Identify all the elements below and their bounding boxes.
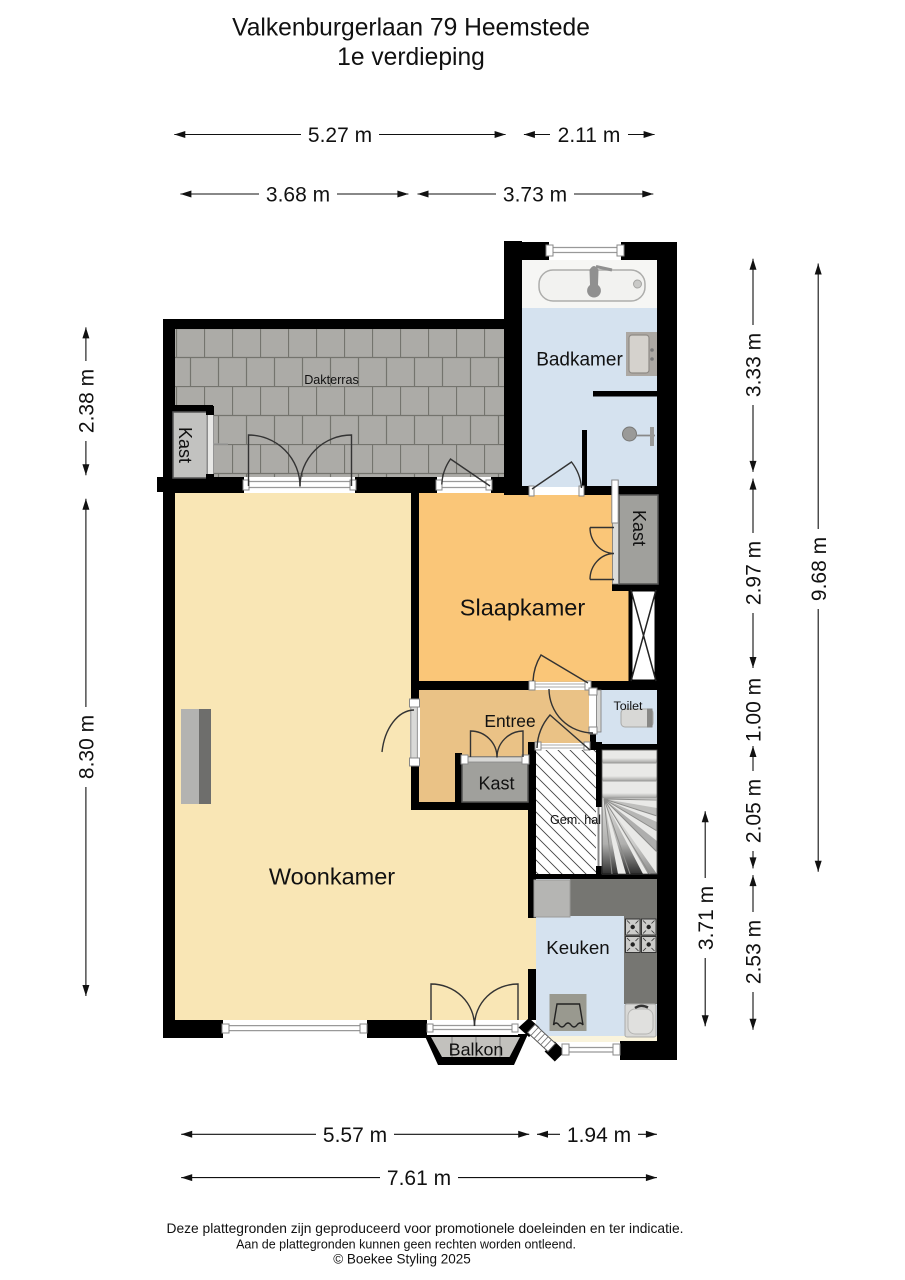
svg-text:Badkamer: Badkamer <box>536 350 623 371</box>
svg-text:1e verdieping: 1e verdieping <box>337 44 485 71</box>
svg-text:3.33 m: 3.33 m <box>743 333 766 397</box>
svg-text:Slaapkamer: Slaapkamer <box>460 594 586 620</box>
svg-text:5.27 m: 5.27 m <box>308 124 372 147</box>
svg-text:Toilet: Toilet <box>614 699 643 713</box>
svg-text:8.30 m: 8.30 m <box>76 715 99 779</box>
svg-text:Keuken: Keuken <box>546 937 609 958</box>
svg-text:2.97 m: 2.97 m <box>743 541 766 605</box>
svg-text:2.05 m: 2.05 m <box>743 779 766 843</box>
svg-text:Deze plattegronden zijn geprod: Deze plattegronden zijn geproduceerd voo… <box>167 1221 684 1236</box>
svg-text:5.57 m: 5.57 m <box>323 1124 387 1147</box>
svg-text:2.53 m: 2.53 m <box>743 920 766 984</box>
svg-text:9.68 m: 9.68 m <box>808 537 831 601</box>
svg-text:3.68 m: 3.68 m <box>266 184 330 207</box>
svg-text:Kast: Kast <box>478 774 514 794</box>
svg-text:Woonkamer: Woonkamer <box>269 864 395 890</box>
svg-text:Gem. hal: Gem. hal <box>550 813 601 827</box>
svg-text:1.94 m: 1.94 m <box>567 1124 631 1147</box>
svg-text:1.00 m: 1.00 m <box>743 678 766 742</box>
svg-text:Entree: Entree <box>484 711 535 731</box>
svg-text:Kast: Kast <box>175 427 195 463</box>
svg-text:© Boekee Styling 2025: © Boekee Styling 2025 <box>333 1252 471 1267</box>
svg-text:Balkon: Balkon <box>449 1039 504 1059</box>
svg-text:3.71 m: 3.71 m <box>695 886 718 950</box>
svg-text:7.61 m: 7.61 m <box>387 1167 451 1190</box>
svg-text:2.11 m: 2.11 m <box>558 124 621 147</box>
svg-text:Kast: Kast <box>629 510 649 546</box>
svg-text:Dakterras: Dakterras <box>304 373 359 387</box>
svg-text:Valkenburgerlaan 79 Heemstede: Valkenburgerlaan 79 Heemstede <box>232 15 590 42</box>
svg-text:3.73 m: 3.73 m <box>503 184 567 207</box>
svg-text:Aan de plattegronden kunnen ge: Aan de plattegronden kunnen geen rechten… <box>236 1238 576 1252</box>
svg-text:2.38 m: 2.38 m <box>76 369 99 433</box>
